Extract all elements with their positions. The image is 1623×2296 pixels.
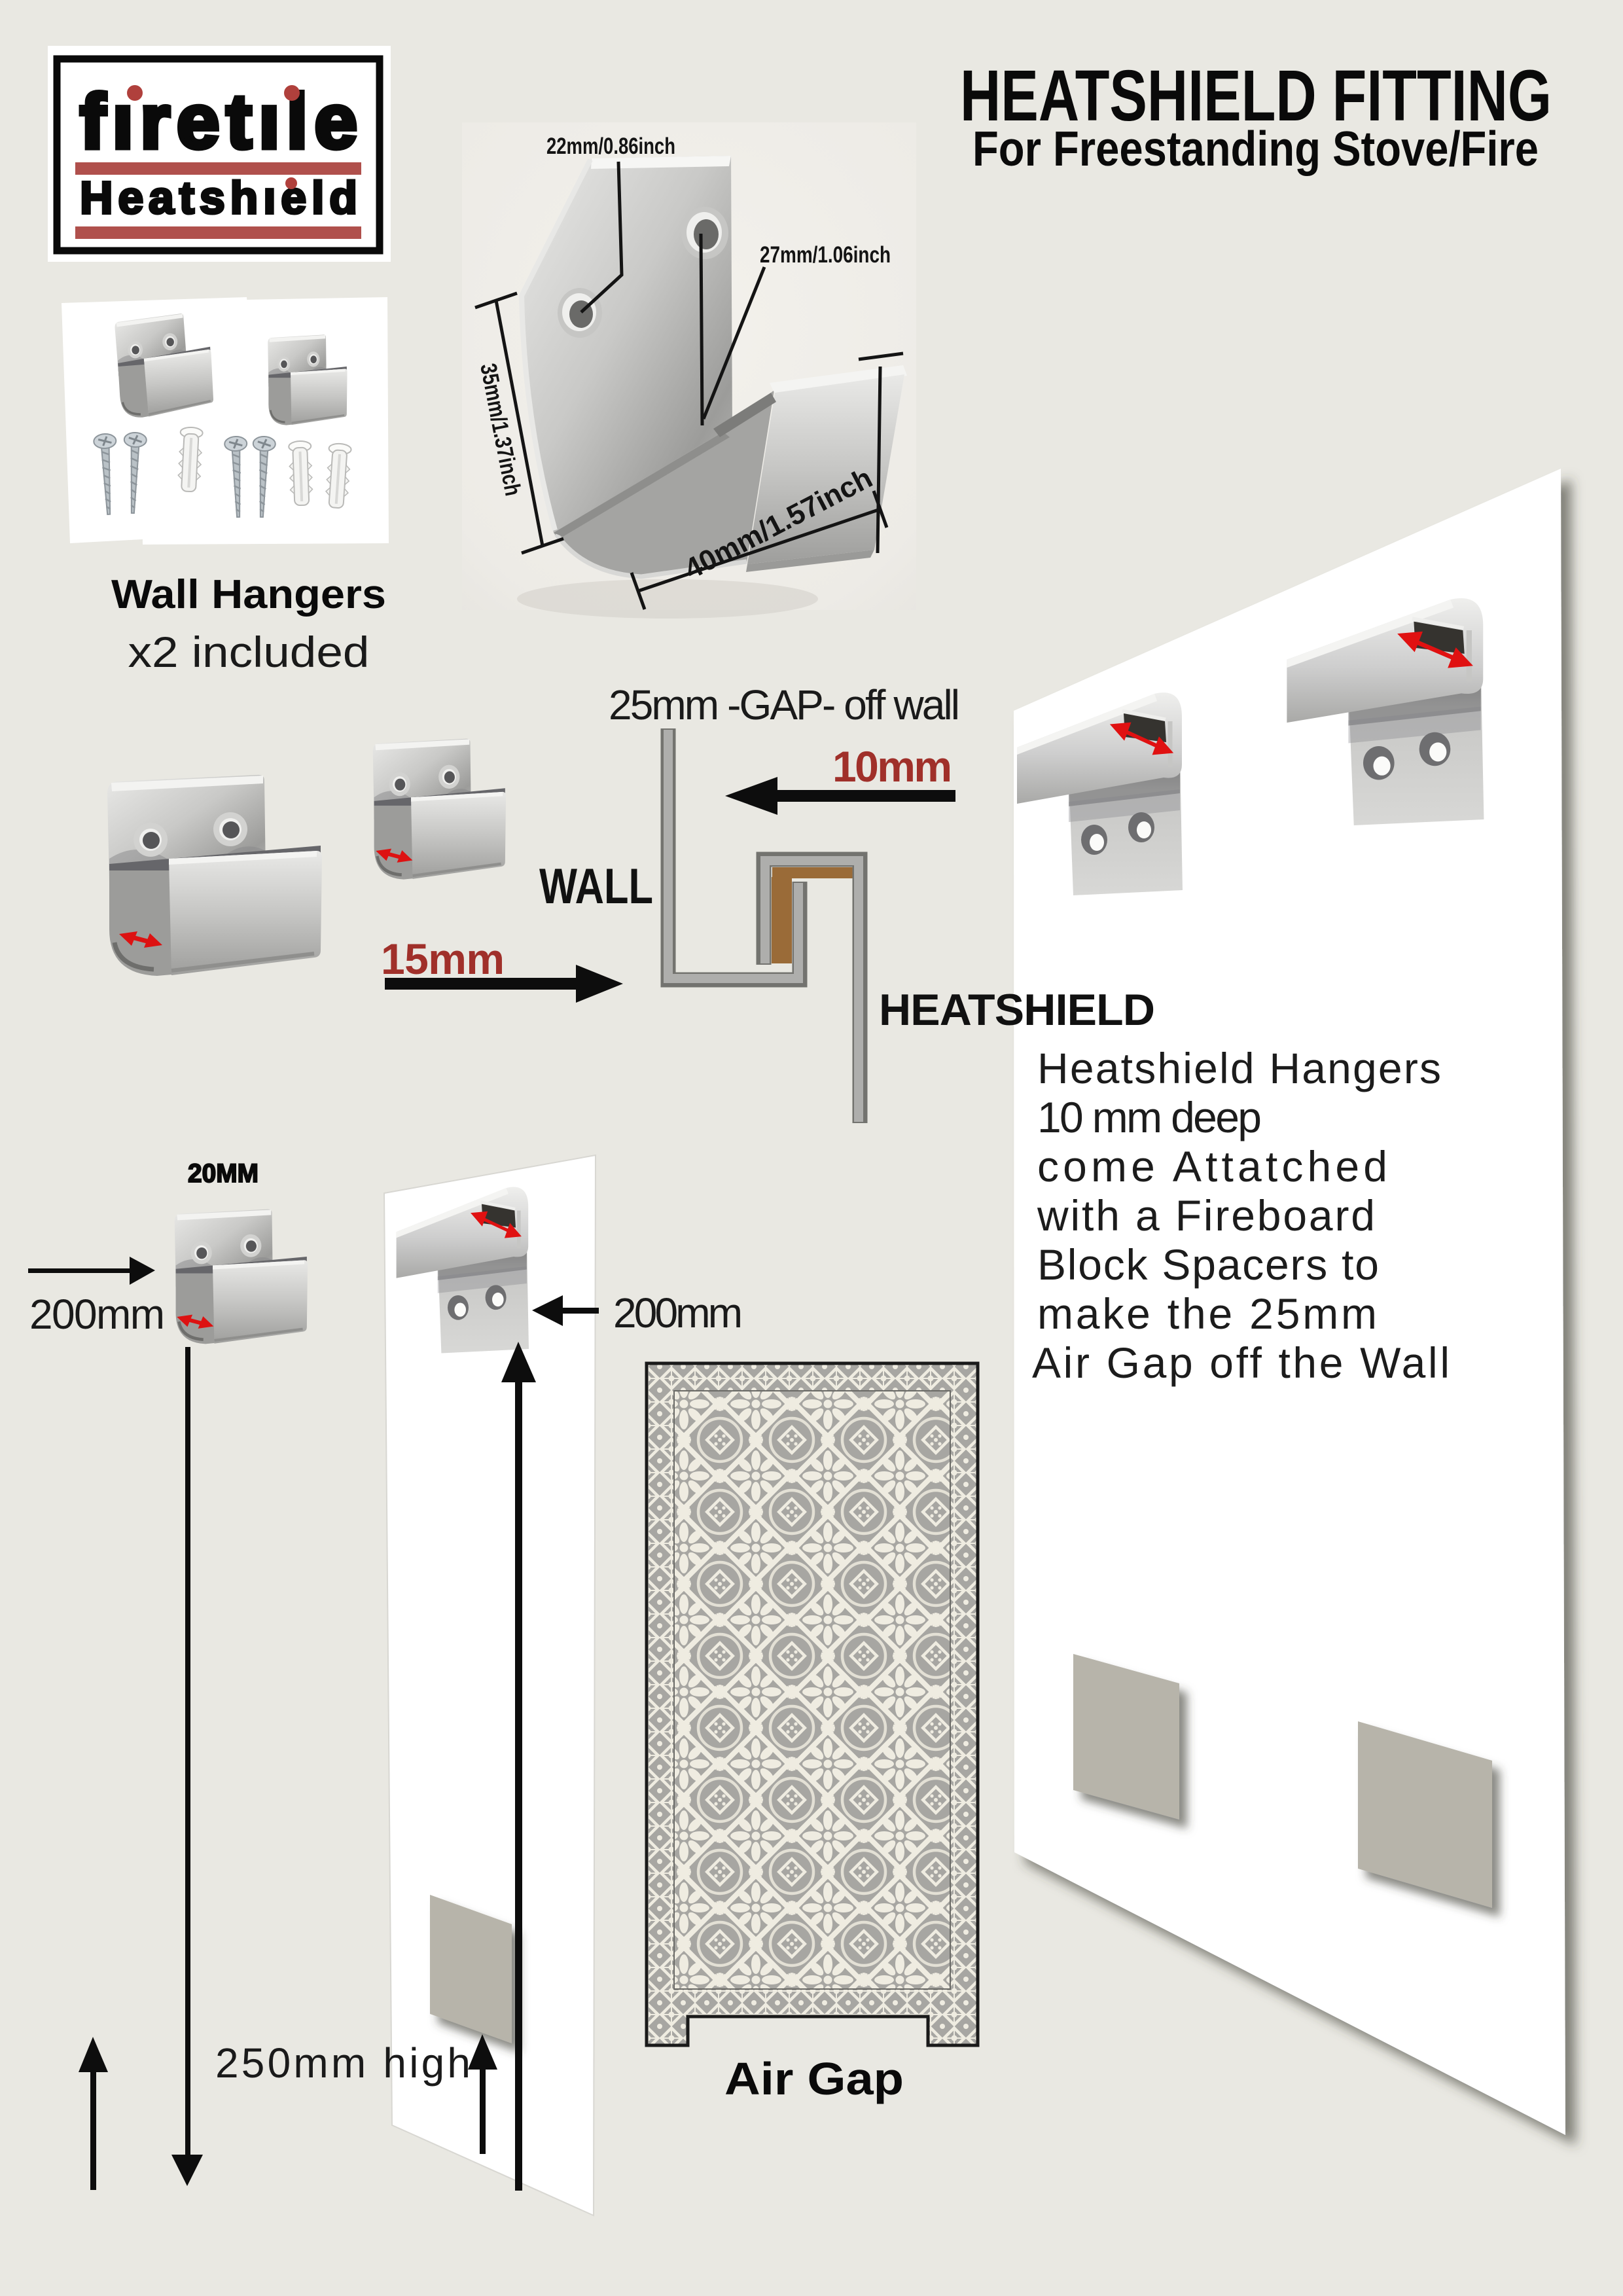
svg-text:200mm: 200mm bbox=[29, 1291, 165, 1338]
svg-text:10mm: 10mm bbox=[832, 742, 952, 791]
svg-text:Air Gap: Air Gap bbox=[724, 2053, 904, 2104]
svg-text:27mm/1.06inch: 27mm/1.06inch bbox=[760, 242, 891, 268]
svg-text:250mm high: 250mm high bbox=[215, 2039, 471, 2087]
svg-text:fıretıle: fıretıle bbox=[80, 79, 357, 165]
svg-text:For Freestanding Stove/Fire: For Freestanding Stove/Fire bbox=[972, 121, 1539, 176]
svg-text:25mm -GAP- off wall: 25mm -GAP- off wall bbox=[609, 681, 960, 728]
svg-text:Air Gap off the Wall: Air Gap off the Wall bbox=[1032, 1338, 1450, 1387]
svg-text:WALL: WALL bbox=[539, 859, 653, 914]
svg-text:200mm: 200mm bbox=[613, 1289, 743, 1336]
svg-text:15mm: 15mm bbox=[381, 935, 505, 983]
svg-text:Heatshield Hangers: Heatshield Hangers bbox=[1037, 1044, 1441, 1092]
svg-text:10 mm deep: 10 mm deep bbox=[1037, 1093, 1262, 1141]
svg-text:with a Fireboard: with a Fireboard bbox=[1037, 1191, 1375, 1240]
svg-text:20MM: 20MM bbox=[188, 1159, 259, 1188]
svg-text:HEATSHIELD: HEATSHIELD bbox=[879, 985, 1155, 1035]
svg-text:Wall Hangers: Wall Hangers bbox=[111, 572, 386, 617]
svg-text:Heatshıeld: Heatshıeld bbox=[80, 172, 357, 223]
svg-text:x2 included: x2 included bbox=[128, 628, 370, 676]
svg-text:22mm/0.86inch: 22mm/0.86inch bbox=[546, 134, 675, 159]
